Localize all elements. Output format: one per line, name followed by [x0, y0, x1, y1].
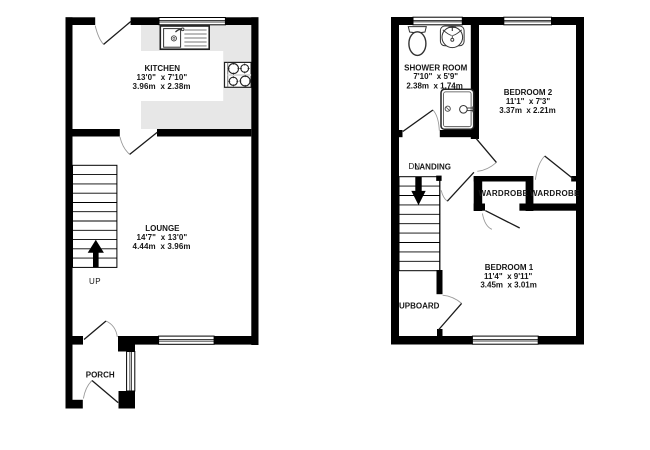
svg-text:LOUNGE: LOUNGE — [145, 224, 180, 233]
svg-text:3.37m x 2.21m: 3.37m x 2.21m — [499, 106, 555, 115]
svg-text:7'10" x 5'9": 7'10" x 5'9" — [413, 72, 458, 81]
svg-text:UPBOARD: UPBOARD — [399, 301, 440, 310]
svg-text:3.45m x 3.01m: 3.45m x 3.01m — [480, 281, 536, 290]
svg-text:LANDING: LANDING — [415, 162, 451, 171]
svg-text:11'4" x 9'11": 11'4" x 9'11" — [484, 272, 533, 281]
svg-text:4.44m x 3.96m: 4.44m x 3.96m — [133, 242, 191, 251]
svg-text:BEDROOM 2: BEDROOM 2 — [504, 88, 553, 97]
svg-text:WARDROBE: WARDROBE — [530, 189, 580, 198]
svg-text:13'0" x 7'10": 13'0" x 7'10" — [136, 73, 187, 82]
svg-text:14'7" x 13'0": 14'7" x 13'0" — [136, 233, 187, 242]
svg-text:UP: UP — [89, 277, 101, 286]
svg-text:PORCH: PORCH — [86, 370, 115, 379]
svg-text:WARDROBE: WARDROBE — [479, 189, 529, 198]
svg-text:BEDROOM 1: BEDROOM 1 — [485, 263, 534, 272]
svg-text:3.96m x 2.38m: 3.96m x 2.38m — [133, 82, 191, 91]
svg-text:KITCHEN: KITCHEN — [145, 64, 181, 73]
